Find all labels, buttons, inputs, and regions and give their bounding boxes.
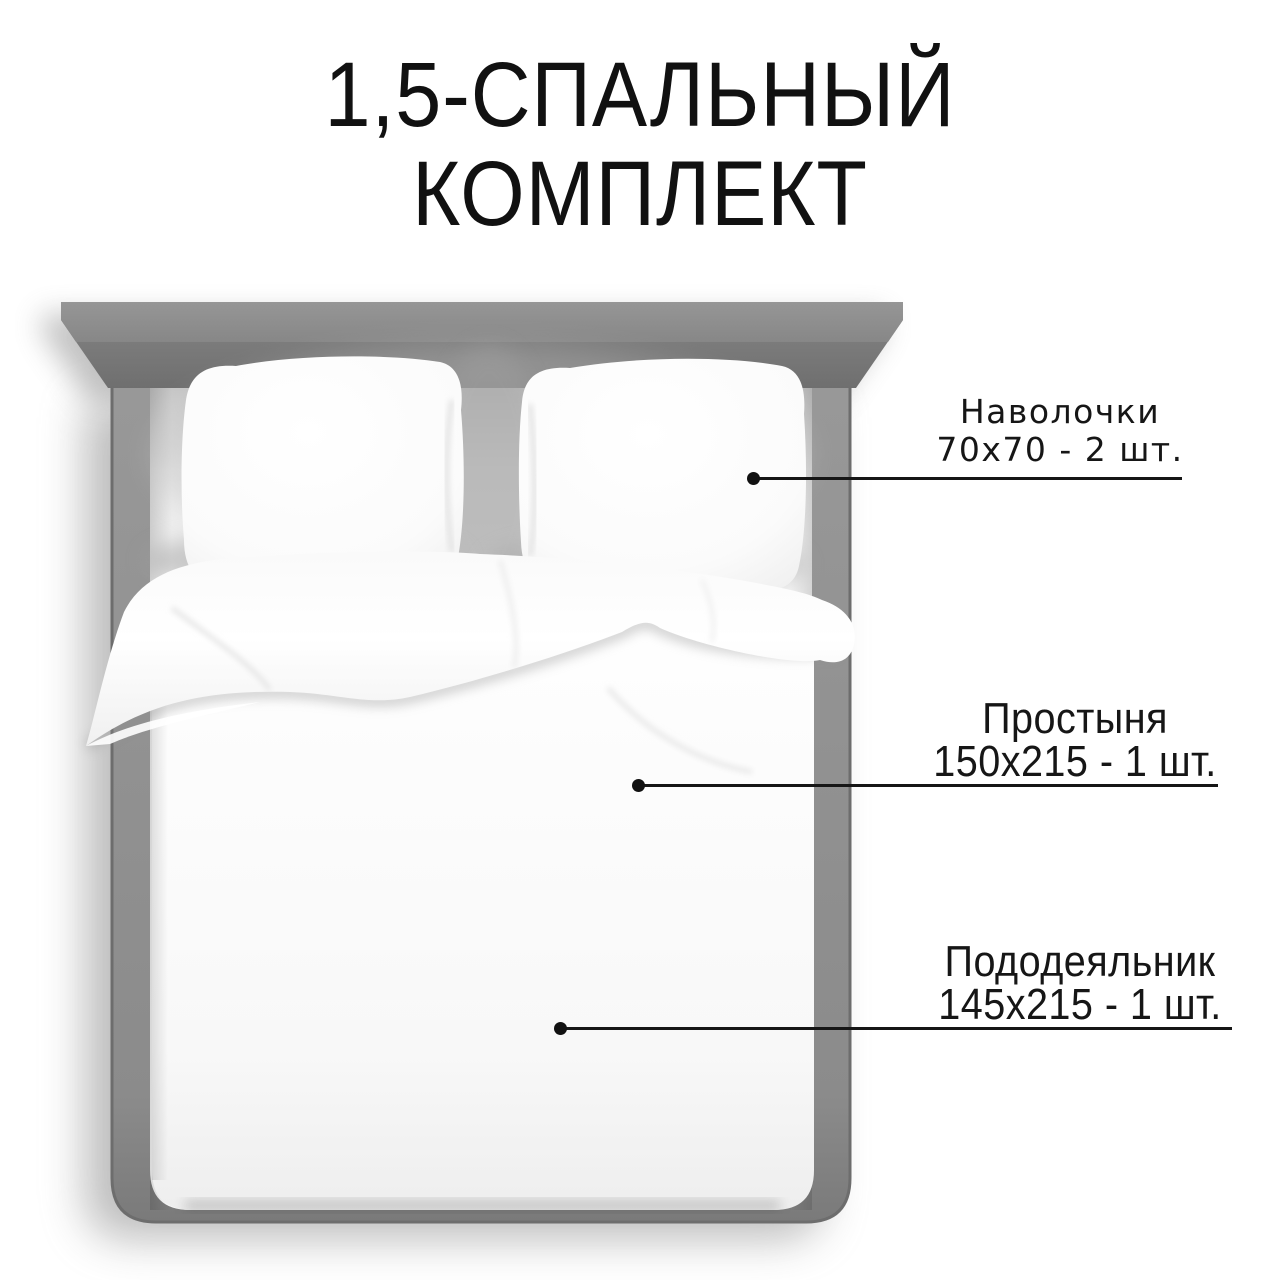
callout-duvet-cover-name: Пододеяльник (932, 940, 1229, 983)
callout-duvet-cover: Пододеяльник 145х215 - 1 шт. (932, 940, 1229, 1026)
page-title-line1: 1,5-СПАЛЬНЫЙ (64, 46, 1216, 145)
headboard-top (61, 302, 903, 342)
callout-duvet-cover-line (560, 1027, 1232, 1030)
callout-sheet-line (638, 784, 1218, 787)
callout-pillowcases-line (753, 477, 1182, 480)
callout-sheet-name: Простыня (931, 697, 1219, 740)
callout-pillowcases-name: Наволочки (895, 393, 1225, 431)
callout-pillowcases: Наволочки 70х70 - 2 шт. (895, 393, 1225, 469)
callout-pillowcases-dot (747, 472, 760, 485)
page-title-line2: КОМПЛЕКТ (64, 145, 1216, 244)
callout-sheet: Простыня 150х215 - 1 шт. (931, 697, 1219, 783)
callout-sheet-dot (632, 779, 645, 792)
callout-sheet-size: 150х215 - 1 шт. (931, 740, 1219, 783)
callout-pillowcases-size: 70х70 - 2 шт. (895, 431, 1225, 469)
page-title: 1,5-СПАЛЬНЫЙ КОМПЛЕКТ (64, 46, 1216, 244)
callout-duvet-cover-size: 145х215 - 1 шт. (932, 983, 1229, 1026)
infographic-canvas: 1,5-СПАЛЬНЫЙ КОМПЛЕКТ Наволочки 70х70 - … (0, 0, 1280, 1280)
callout-duvet-cover-dot (554, 1022, 567, 1035)
frame-bottom-shade (185, 1201, 780, 1210)
